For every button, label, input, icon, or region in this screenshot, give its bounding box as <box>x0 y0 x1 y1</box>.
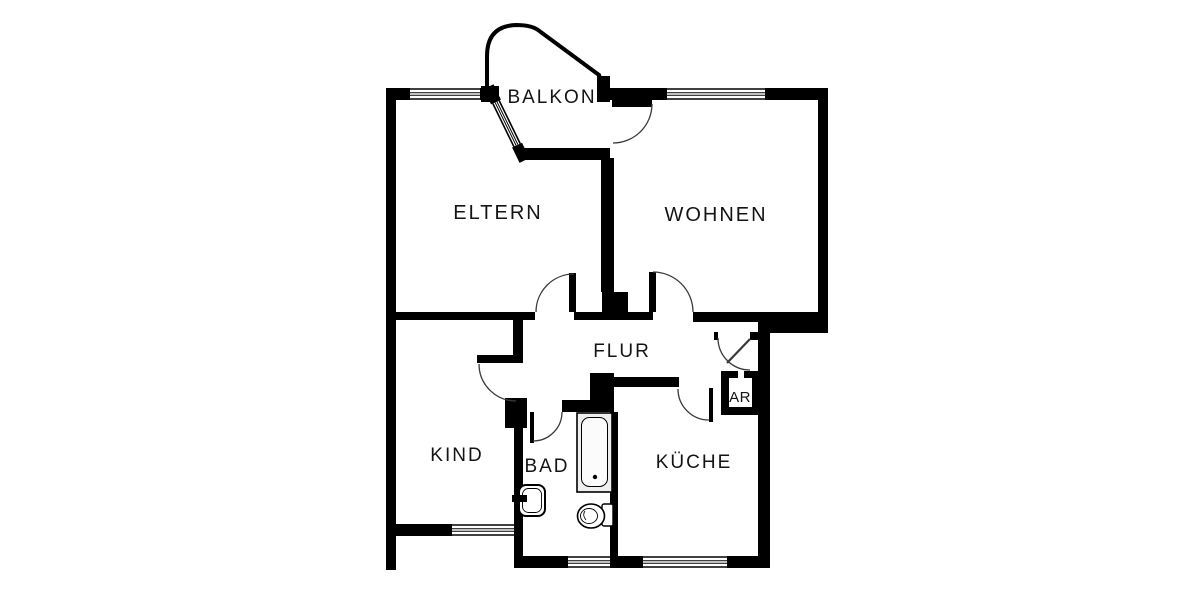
ar-door-leaf <box>727 339 750 363</box>
wall-step-right <box>758 322 828 333</box>
toilet-icon <box>578 504 614 528</box>
bathtub-icon <box>577 413 612 492</box>
wall-bottom-b <box>610 556 643 568</box>
room-label-ar: AR <box>729 389 751 406</box>
wall-kind-stub <box>477 355 523 363</box>
walls <box>386 76 828 570</box>
room-label-kind: KIND <box>430 445 483 466</box>
wall-ar-bottom <box>721 407 760 415</box>
kind-door-arc <box>479 364 516 401</box>
wall-flur-top-mid <box>574 312 653 320</box>
floorplan-canvas: BALKON ELTERN WOHNEN FLUR KIND BAD KÜCHE… <box>0 0 1200 600</box>
wall-bottom-c <box>727 556 770 568</box>
balcony-door-leaf <box>612 100 652 107</box>
wall-balkon-bottom <box>518 148 610 160</box>
room-label-wohnen: WOHNEN <box>664 204 767 226</box>
wall-eltern-wohnen-divider <box>601 158 614 292</box>
wall-kind-bottom <box>395 524 452 536</box>
wohnen-door-leaf <box>649 272 656 312</box>
wall-left-outer <box>386 88 396 570</box>
room-label-kueche: KÜCHE <box>656 452 733 473</box>
wall-ar-top-right <box>750 332 764 340</box>
kueche-door-arc <box>678 389 709 420</box>
wohnen-door-arc <box>653 272 693 312</box>
wall-kind-jog <box>513 318 523 355</box>
wall-ar-stub-l <box>729 371 738 378</box>
wall-flur-kueche <box>612 377 679 387</box>
room-label-flur: FLUR <box>593 341 651 362</box>
wall-pier-foot <box>602 292 628 312</box>
wall-ar-stub-r <box>744 371 752 378</box>
kueche-door-leaf <box>709 388 713 422</box>
bad-door-arc <box>533 412 562 441</box>
room-label-eltern: ELTERN <box>453 202 542 224</box>
floorplan-svg: BALKON ELTERN WOHNEN FLUR KIND BAD KÜCHE… <box>0 0 1200 600</box>
wall-pier-a <box>505 398 527 428</box>
wall-wohnen-bottom <box>693 312 828 322</box>
wall-top-left-a <box>396 88 410 100</box>
wall-right-outer <box>818 88 828 322</box>
wall-pier-b <box>590 373 614 412</box>
eltern-door-leaf <box>569 273 576 312</box>
room-label-bad: BAD <box>524 456 569 477</box>
eltern-door-arc <box>536 274 574 312</box>
window-wohnen-top <box>667 88 765 100</box>
wall-top-right-a <box>602 88 667 100</box>
balcony-door-arc <box>613 104 652 143</box>
window-kind-bottom <box>452 524 514 536</box>
window-bad-bottom <box>568 556 610 568</box>
bad-door-leaf <box>530 412 534 443</box>
window-eltern-top <box>410 88 480 100</box>
room-label-balkon: BALKON <box>507 87 596 108</box>
window-kueche-bottom <box>643 556 727 568</box>
wall-kueche-right <box>758 333 770 568</box>
